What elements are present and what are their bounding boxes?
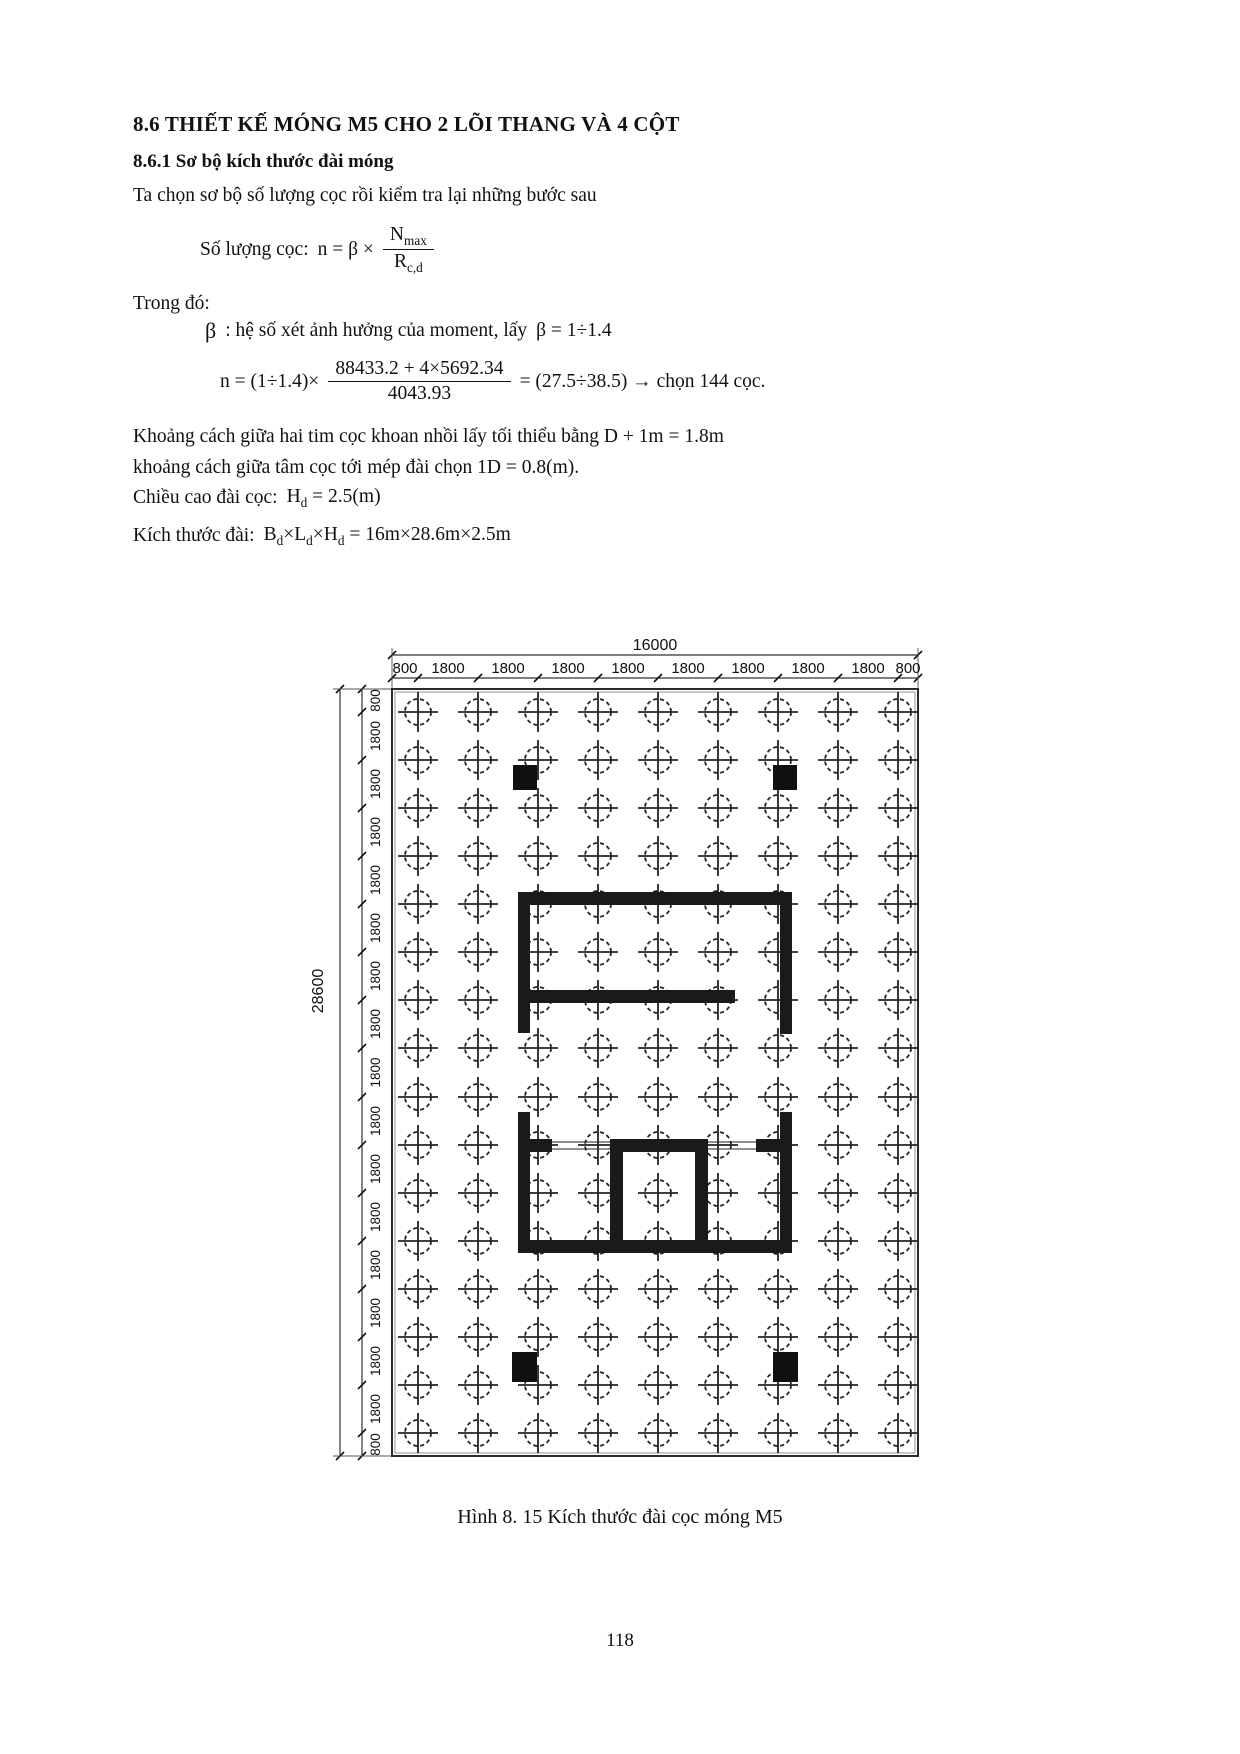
pile-symbol [878, 1365, 918, 1405]
pile-symbol [458, 1173, 498, 1213]
pile-symbol [398, 1221, 438, 1261]
svg-text:1800: 1800 [368, 1298, 383, 1328]
fraction-numerator: Nmax [383, 224, 434, 250]
pile-symbol [698, 692, 738, 732]
pile-symbol [458, 884, 498, 924]
cap-size-line: Kích thước đài: Bd×Ld×Hd = 16m×28.6m×2.5… [133, 524, 511, 549]
upper-core-top-wall [518, 892, 792, 905]
pile-symbol [698, 1413, 738, 1453]
pile-symbol [398, 1413, 438, 1453]
pile-symbol [458, 1269, 498, 1309]
pile-symbol [458, 1317, 498, 1357]
upper-core-middle-wall [518, 990, 735, 1003]
dim-total-height-label: 28600 [310, 969, 327, 1014]
lower-core-top-wall-segment [756, 1139, 780, 1152]
pile-symbol [578, 1365, 618, 1405]
pile-symbol [458, 836, 498, 876]
pile-symbol [698, 932, 738, 972]
calc-denominator: 4043.93 [328, 382, 510, 405]
upper-core-left-wall [518, 892, 530, 1033]
pile-symbol [398, 692, 438, 732]
pile-number-calculation: n = (1÷1.4)× 88433.2 + 4×5692.34 4043.93… [220, 358, 765, 406]
formula-label: Số lượng cọc: [200, 239, 309, 261]
pile-symbol [818, 788, 858, 828]
pile-symbol [518, 1269, 558, 1309]
pile-symbol [818, 1077, 858, 1117]
pile-symbol [878, 1413, 918, 1453]
pile-symbol [398, 836, 438, 876]
pile-grid [398, 692, 918, 1453]
svg-text:800: 800 [895, 660, 920, 677]
lower-core-top-wall-segment [530, 1139, 552, 1152]
pile-symbol [698, 1365, 738, 1405]
svg-text:1800: 1800 [368, 865, 383, 895]
column-section [773, 1352, 798, 1382]
svg-text:1800: 1800 [851, 660, 884, 677]
page-number: 118 [0, 1630, 1240, 1652]
calc-lhs: n = (1÷1.4)× [220, 371, 319, 393]
pile-symbol [518, 692, 558, 732]
lower-core-left-wall [518, 1112, 530, 1253]
pile-symbol [398, 1269, 438, 1309]
svg-text:1800: 1800 [368, 817, 383, 847]
pile-symbol [818, 1317, 858, 1357]
pile-symbol [818, 884, 858, 924]
svg-text:1800: 1800 [491, 660, 524, 677]
pile-symbol [518, 836, 558, 876]
svg-text:800: 800 [368, 689, 383, 712]
pile-symbol [458, 740, 498, 780]
pile-count-formula: Số lượng cọc: n = β × Nmax Rc,d [200, 224, 434, 275]
beta-definition-line: β : hệ số xét ảnh hưởng của moment, lấy … [205, 320, 612, 342]
pile-symbol [698, 1077, 738, 1117]
pile-symbol [878, 884, 918, 924]
pile-symbol [638, 1413, 678, 1453]
beta-note: : hệ số xét ảnh hưởng của moment, lấy [225, 320, 527, 342]
svg-text:1800: 1800 [368, 1250, 383, 1280]
pile-symbol [578, 1317, 618, 1357]
pile-symbol [878, 1028, 918, 1068]
pile-symbol [758, 692, 798, 732]
cap-size-formula: Bd×Ld×Hd = 16m×28.6m×2.5m [264, 524, 511, 549]
pile-symbol [698, 1317, 738, 1357]
pile-symbol [878, 1317, 918, 1357]
calc-fraction: 88433.2 + 4×5692.34 4043.93 [328, 358, 510, 406]
pile-symbol [698, 788, 738, 828]
pile-symbol [758, 1317, 798, 1357]
cap-height-label: Chiều cao đài cọc: [133, 487, 278, 509]
cap-height-formula: Hd = 2.5(m) [287, 486, 381, 511]
svg-text:1800: 1800 [368, 1202, 383, 1232]
column-section [513, 765, 537, 790]
pile-symbol [458, 1028, 498, 1068]
svg-text:1800: 1800 [368, 1009, 383, 1039]
pile-symbol [578, 932, 618, 972]
pile-symbol [818, 1269, 858, 1309]
pile-symbol [398, 980, 438, 1020]
pile-symbol [578, 692, 618, 732]
pile-cap-inner-outline [395, 692, 915, 1453]
section-heading: 8.6 THIẾT KẾ MÓNG M5 CHO 2 LÕI THANG VÀ … [133, 112, 680, 137]
pile-symbol [518, 1317, 558, 1357]
pile-symbol [578, 1028, 618, 1068]
pile-symbol [638, 1173, 678, 1213]
figure-caption: Hình 8. 15 Kích thước đài cọc móng M5 [0, 1506, 1240, 1529]
pile-symbol [878, 1221, 918, 1261]
pile-symbol [578, 740, 618, 780]
pile-symbol [398, 1173, 438, 1213]
svg-text:1800: 1800 [368, 1154, 383, 1184]
pile-symbol [398, 1365, 438, 1405]
beta-value: β = 1÷1.4 [536, 320, 612, 342]
svg-text:1800: 1800 [611, 660, 644, 677]
lower-core-inner-wall-left [610, 1149, 623, 1240]
pile-symbol [818, 1365, 858, 1405]
pile-symbol [518, 1077, 558, 1117]
pile-symbol [458, 980, 498, 1020]
formula-lhs: n = β × [318, 239, 374, 261]
pile-symbol [638, 692, 678, 732]
pile-spacing-line1: Khoảng cách giữa hai tim cọc khoan nhồi … [133, 426, 724, 448]
pile-symbol [758, 836, 798, 876]
pile-symbol [518, 1028, 558, 1068]
pile-symbol [878, 1125, 918, 1165]
svg-text:1800: 1800 [731, 660, 764, 677]
svg-text:1800: 1800 [671, 660, 704, 677]
svg-text:800: 800 [368, 1433, 383, 1456]
lower-core-right-wall [780, 1112, 792, 1253]
pile-symbol [398, 884, 438, 924]
trong-do-label: Trong đó: [133, 293, 210, 315]
document-page: 8.6 THIẾT KẾ MÓNG M5 CHO 2 LÕI THANG VÀ … [0, 0, 1240, 1754]
pile-symbol [458, 1077, 498, 1117]
pile-symbol [878, 1269, 918, 1309]
lower-core-inner-wall-right [695, 1149, 708, 1240]
pile-symbol [818, 740, 858, 780]
pile-spacing-line2: khoảng cách giữa tâm cọc tới mép đài chọ… [133, 457, 579, 479]
svg-text:1800: 1800 [368, 1106, 383, 1136]
svg-text:1800: 1800 [368, 769, 383, 799]
pile-symbol [398, 932, 438, 972]
pile-cap-outline [392, 689, 918, 1456]
pile-symbol [638, 1365, 678, 1405]
pile-symbol [758, 1269, 798, 1309]
pile-symbol [518, 1413, 558, 1453]
pile-symbol [578, 1413, 618, 1453]
top-dimension-string: 80018001800180018001800180018001800800 [388, 648, 922, 689]
pile-symbol [458, 1413, 498, 1453]
dim-total-width-label: 16000 [633, 637, 678, 654]
pile-symbol [458, 1221, 498, 1261]
pile-symbol [818, 980, 858, 1020]
svg-text:1800: 1800 [431, 660, 464, 677]
cap-height-line: Chiều cao đài cọc: Hd = 2.5(m) [133, 486, 381, 511]
pile-symbol [698, 1028, 738, 1068]
svg-text:800: 800 [392, 660, 417, 677]
pile-symbol [878, 1173, 918, 1213]
cap-size-label: Kích thước đài: [133, 525, 255, 547]
pile-symbol [638, 740, 678, 780]
column-section [773, 765, 797, 790]
pile-symbol [458, 692, 498, 732]
column-section [512, 1352, 537, 1382]
pile-symbol [638, 1269, 678, 1309]
pile-symbol [758, 788, 798, 828]
pile-symbol [818, 1173, 858, 1213]
intro-paragraph: Ta chọn sơ bộ số lượng cọc rồi kiểm tra … [133, 185, 597, 207]
svg-text:1800: 1800 [368, 913, 383, 943]
pile-symbol [698, 1269, 738, 1309]
left-dimension-string: 8001800180018001800180018001800180018001… [333, 685, 392, 1460]
pile-symbol [878, 692, 918, 732]
pile-symbol [758, 1413, 798, 1453]
pile-symbol [818, 692, 858, 732]
pile-symbol [818, 1221, 858, 1261]
pile-symbol [878, 788, 918, 828]
pile-symbol [578, 1269, 618, 1309]
pile-symbol [458, 788, 498, 828]
pile-symbol [878, 740, 918, 780]
svg-text:1800: 1800 [368, 1057, 383, 1087]
pile-symbol [638, 1028, 678, 1068]
pile-symbol [458, 932, 498, 972]
pile-symbol [578, 836, 618, 876]
beta-symbol: β [205, 320, 216, 342]
pile-symbol [398, 1125, 438, 1165]
fraction-denominator: Rc,d [383, 250, 434, 275]
pile-symbol [638, 1317, 678, 1357]
pile-symbol [398, 1317, 438, 1357]
svg-text:1800: 1800 [551, 660, 584, 677]
pile-symbol [758, 1077, 798, 1117]
lower-core-bottom-wall [518, 1240, 792, 1253]
pile-symbol [638, 836, 678, 876]
pile-symbol [698, 740, 738, 780]
pile-symbol [878, 1077, 918, 1117]
pile-symbol [398, 1028, 438, 1068]
svg-text:1800: 1800 [368, 961, 383, 991]
svg-text:1800: 1800 [368, 1346, 383, 1376]
pile-symbol [878, 932, 918, 972]
pile-symbol [458, 1365, 498, 1405]
pile-symbol [398, 788, 438, 828]
pile-symbol [818, 1125, 858, 1165]
pile-symbol [458, 1125, 498, 1165]
svg-text:1800: 1800 [791, 660, 824, 677]
pile-symbol [818, 1028, 858, 1068]
pile-symbol [818, 1413, 858, 1453]
svg-text:1800: 1800 [368, 721, 383, 751]
pile-cap-plan-figure: 16000 28600 8001800180018001800180018001… [295, 628, 940, 1483]
svg-text:1800: 1800 [368, 1394, 383, 1424]
pile-symbol [878, 980, 918, 1020]
formula-fraction: Nmax Rc,d [383, 224, 434, 275]
pile-symbol [878, 836, 918, 876]
calc-numerator: 88433.2 + 4×5692.34 [328, 358, 510, 382]
pile-symbol [638, 932, 678, 972]
pile-symbol [818, 932, 858, 972]
subsection-heading: 8.6.1 Sơ bộ kích thước đài móng [133, 151, 394, 173]
upper-core-right-wall [780, 892, 792, 1034]
calc-result: = (27.5÷38.5) → chọn 144 cọc. [520, 371, 766, 393]
pile-symbol [638, 788, 678, 828]
pile-symbol [698, 836, 738, 876]
pile-symbol [578, 1077, 618, 1117]
pile-symbol [398, 740, 438, 780]
pile-symbol [578, 788, 618, 828]
pile-symbol [818, 836, 858, 876]
pile-symbol [398, 1077, 438, 1117]
pile-symbol [518, 788, 558, 828]
lower-core-top-wall-segment [610, 1139, 708, 1152]
pile-symbol [638, 1077, 678, 1117]
